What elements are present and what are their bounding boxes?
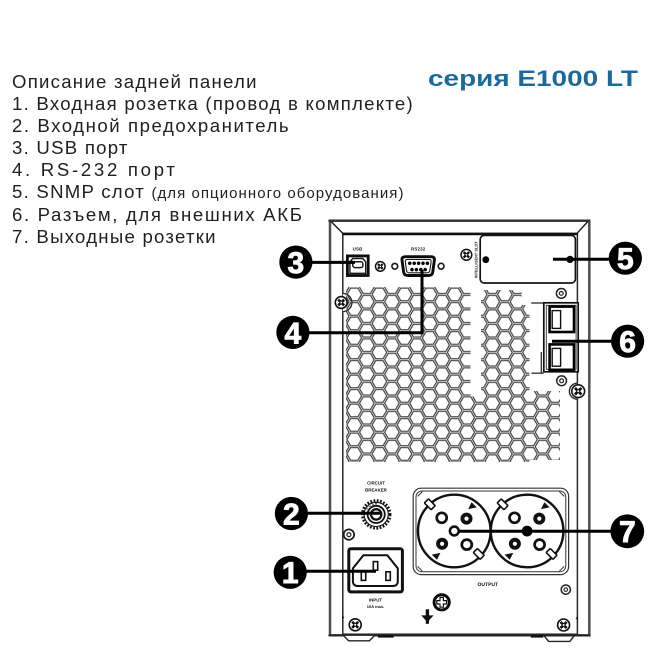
- svg-text:6: 6: [619, 326, 636, 359]
- svg-text:5: 5: [617, 243, 634, 276]
- svg-text:BREAKER: BREAKER: [365, 487, 388, 492]
- svg-text:INTELLIGENT SLOT: INTELLIGENT SLOT: [473, 241, 478, 279]
- svg-text:3: 3: [288, 247, 305, 280]
- svg-text:2: 2: [283, 498, 300, 531]
- svg-text:10A max.: 10A max.: [367, 604, 384, 609]
- svg-text:7: 7: [619, 516, 636, 549]
- svg-text:USB: USB: [353, 247, 363, 252]
- svg-text:1: 1: [282, 557, 299, 590]
- svg-text:CIRCUIT: CIRCUIT: [367, 481, 385, 486]
- svg-text:INPUT: INPUT: [369, 598, 382, 603]
- svg-text:RS232: RS232: [411, 247, 426, 252]
- svg-text:4: 4: [285, 317, 302, 350]
- svg-text:OUTPUT: OUTPUT: [478, 582, 499, 588]
